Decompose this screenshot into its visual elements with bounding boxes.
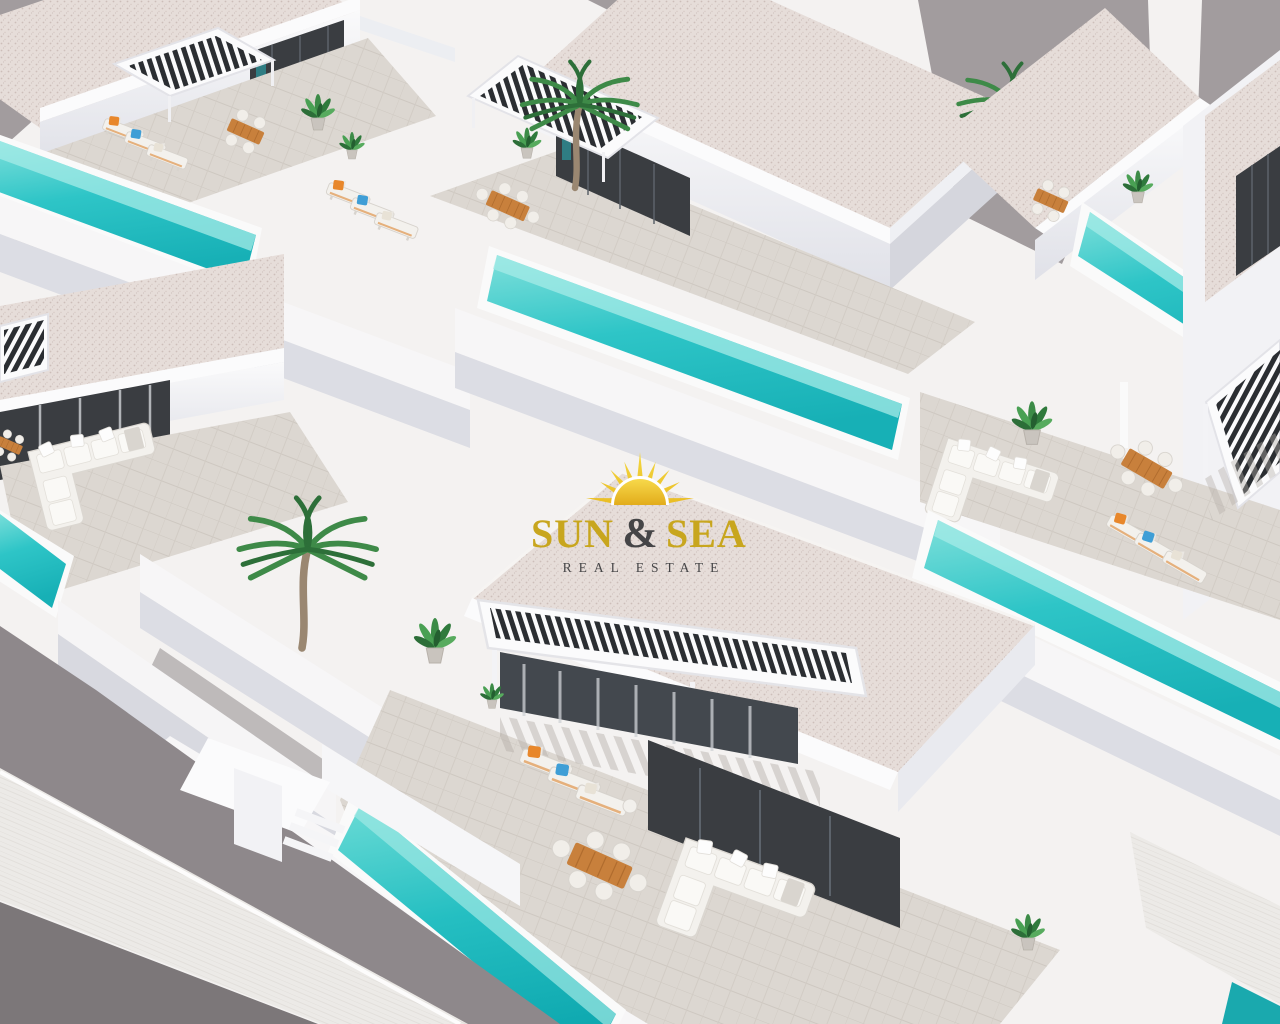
- brand-tagline: REAL ESTATE: [563, 560, 726, 575]
- brand-word1: SUN: [531, 511, 614, 556]
- villa-development-render: SUN & SEA REAL ESTATE: [0, 0, 1280, 1024]
- brand-word2: SEA: [666, 511, 747, 556]
- brand-ampersand: &: [623, 511, 658, 557]
- render-image: SUN & SEA REAL ESTATE: [0, 0, 1280, 1024]
- porch-column: [1120, 382, 1128, 448]
- pergola: [0, 314, 48, 382]
